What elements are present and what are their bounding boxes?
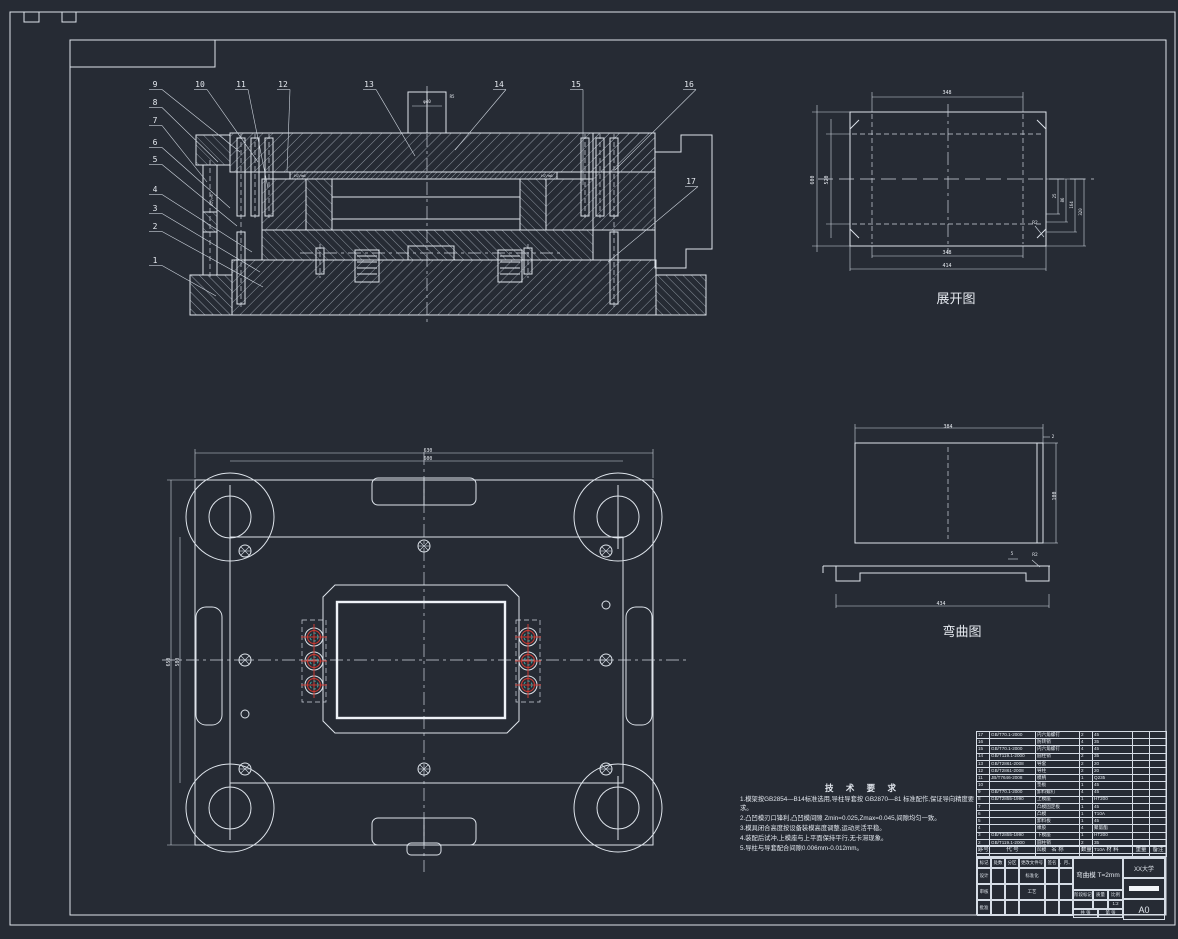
title-block: 标记处数分区更改文件号签名年、月、日设计标准化审核工艺批准 弯曲模 T=2mm … [976,857,1166,915]
dim-label: H7/m6 [541,173,553,178]
tech-req-lines: 1.模架按GB2854—B14标准选用,导柱导套按 GB2870—81 标准配作… [740,796,986,854]
revision-table: 标记处数分区更改文件号签名年、月、日设计标准化审核工艺批准 [977,858,1073,914]
section-view: φ40R5H7/m6H7/m6H7/r6 9876543211011121314… [149,80,712,322]
table-row: 7凸模固定板145 [977,803,1167,810]
callout-number: 10 [195,80,205,89]
tech-req-line: 3.模具闭合高度按设备装模高度调整,运动灵活平稳。 [740,825,986,834]
table-row: 14GB/T119.1-2000圆柱销235 [977,753,1167,760]
callout-number: 16 [684,80,694,89]
zone-mark [62,12,76,22]
part-name: 弯曲模 T=2mm [1073,858,1123,890]
dim-label: 348 [942,90,951,96]
dim-label: H7/m6 [294,173,306,178]
zone-mark [24,12,39,22]
dim-label: 25 [1052,193,1057,198]
dim-label: 414 [942,263,951,269]
table-row: 16防转销435 [977,739,1167,746]
callout-number: 4 [153,185,158,194]
screw-icon [239,654,251,666]
screw-markers [239,540,612,775]
dim-label: 600 [810,175,816,184]
sheet-size: A0 [1123,899,1165,920]
dim-label: 86 [1060,197,1065,202]
cad-drawing-sheet: φ40R5H7/m6H7/m6H7/r6 9876543211011121314… [0,0,1178,939]
callout-number: 13 [364,80,374,89]
develop-view: 3486005203484142586164320R2 展开图 [810,90,1094,307]
tech-req-title: 技 术 要 求 [740,782,986,794]
table-row: 6凸模1T10A [977,811,1167,818]
callout-number: 14 [494,80,504,89]
dim-label: 580 [175,658,181,667]
screw-icon [239,763,251,775]
callout-number: 9 [153,80,158,89]
parts-list-header: 序号代 号名 称数量材 料重量备注 [976,845,1166,857]
projection-bar [1123,878,1165,899]
table-row: 5卸料板145 [977,818,1167,825]
screw-icon [239,545,251,557]
dim-label: φ40 [423,99,431,104]
screw-icon [600,763,612,775]
dim-label: 2 [1052,434,1055,440]
dim-label: 434 [936,601,945,607]
callout-number: 15 [571,80,581,89]
callout-number: 5 [153,155,158,164]
stage-table: 阶段标记质量比例1:2 [1073,890,1123,909]
screw-icon [600,545,612,557]
callout-number: 3 [153,204,158,213]
tech-req-line: 2.凸凹模刃口锋利,凸凹模间隙 Zmin=0.025,Zmax=0.045,间隙… [740,815,986,824]
table-row: 15GB/T70.1-2000内六角螺钉445 [977,746,1167,753]
dim-label: 348 [942,250,951,256]
sheet-table: 共 张第 张 [1073,909,1123,918]
dim-label: 5 [1011,551,1014,557]
callout-number: 2 [153,222,158,231]
dim-label: 384 [943,424,952,430]
dim-label: 650 [166,658,172,667]
dim-label: R5 [450,94,455,99]
dim-label: 630 [424,448,433,454]
bend-dims: 3842100R25434 [936,424,1058,607]
callout-number: 12 [278,80,288,89]
table-row: 10垫板145 [977,782,1167,789]
callout-number: 7 [153,116,158,125]
develop-title: 展开图 [936,292,975,307]
table-row: 11JB/T7646-2008模柄1Q235 [977,775,1167,782]
table-row: 13GB/T2861-2008导套220 [977,760,1167,767]
dim-label: R2 [1032,552,1038,558]
table-row: 17GB/T70.1-2000内六角螺钉245 [977,732,1167,739]
technical-requirements: 技 术 要 求 1.模架按GB2854—B14标准选用,导柱导套按 GB2870… [740,782,986,855]
dim-label: 100 [1052,491,1058,500]
dim-label: 164 [1069,201,1074,209]
table-row: 8GB/T2855-1990上模座1HT200 [977,796,1167,803]
dim-label: 320 [1078,208,1083,216]
table-row: 12GB/T2861-2008导柱220 [977,767,1167,774]
plan-view: 630600650580 [162,448,688,872]
bend-view: 3842100R25434 弯曲图 [823,424,1058,640]
table-row: 3GB/T2855-1990下模座1HT200 [977,832,1167,839]
tech-req-line: 5.导柱与导套配合间隙0.006mm-0.012mm。 [740,845,986,854]
callout-number: 1 [153,256,158,265]
callout-number: 17 [686,177,696,186]
callout-number: 11 [236,80,246,89]
tech-req-line: 4.装配后试冲,上模座与上平面保持平行,无卡滞现象。 [740,835,986,844]
callout-number: 8 [153,98,158,107]
screw-icon [600,654,612,666]
dim-label: R2 [1032,220,1038,226]
develop-dims: 3486005203484142586164320R2 [810,90,1083,269]
parts-list: 17GB/T70.1-2000内六角螺钉24516防转销43515GB/T70.… [976,731,1166,854]
bend-title: 弯曲图 [942,624,981,640]
tech-req-line: 1.模架按GB2854—B14标准选用,导柱导套按 GB2870—81 标准配作… [740,796,986,814]
dim-label: 520 [824,175,830,184]
header-row: 序号代 号名 称数量材 料重量备注 [977,846,1167,857]
callout-number: 6 [153,138,158,147]
plan-dims: 630600650580 [166,448,432,666]
table-row: 4橡胶4聚氨酯 [977,825,1167,832]
table-row: 9GB/T70.1-2000卸料螺钉445 [977,789,1167,796]
organization: XX大学 [1123,858,1165,878]
dim-label: 600 [424,456,433,462]
